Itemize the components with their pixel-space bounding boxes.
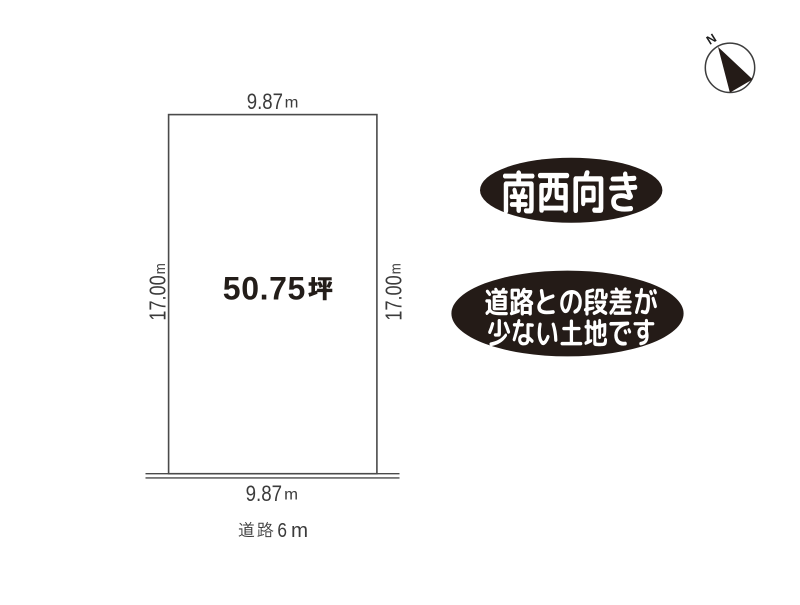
svg-text:17.00: 17.00 bbox=[381, 275, 407, 320]
svg-text:9.87: 9.87 bbox=[247, 89, 283, 114]
svg-text:m: m bbox=[285, 95, 299, 112]
svg-text:m: m bbox=[152, 263, 169, 274]
svg-text:6: 6 bbox=[277, 519, 287, 542]
svg-text:9.87: 9.87 bbox=[246, 481, 282, 506]
svg-text:m: m bbox=[291, 519, 308, 542]
svg-text:m: m bbox=[388, 263, 405, 274]
svg-text:m: m bbox=[284, 487, 298, 504]
svg-text:17.00: 17.00 bbox=[145, 275, 171, 320]
svg-text:50.75: 50.75 bbox=[223, 270, 306, 306]
